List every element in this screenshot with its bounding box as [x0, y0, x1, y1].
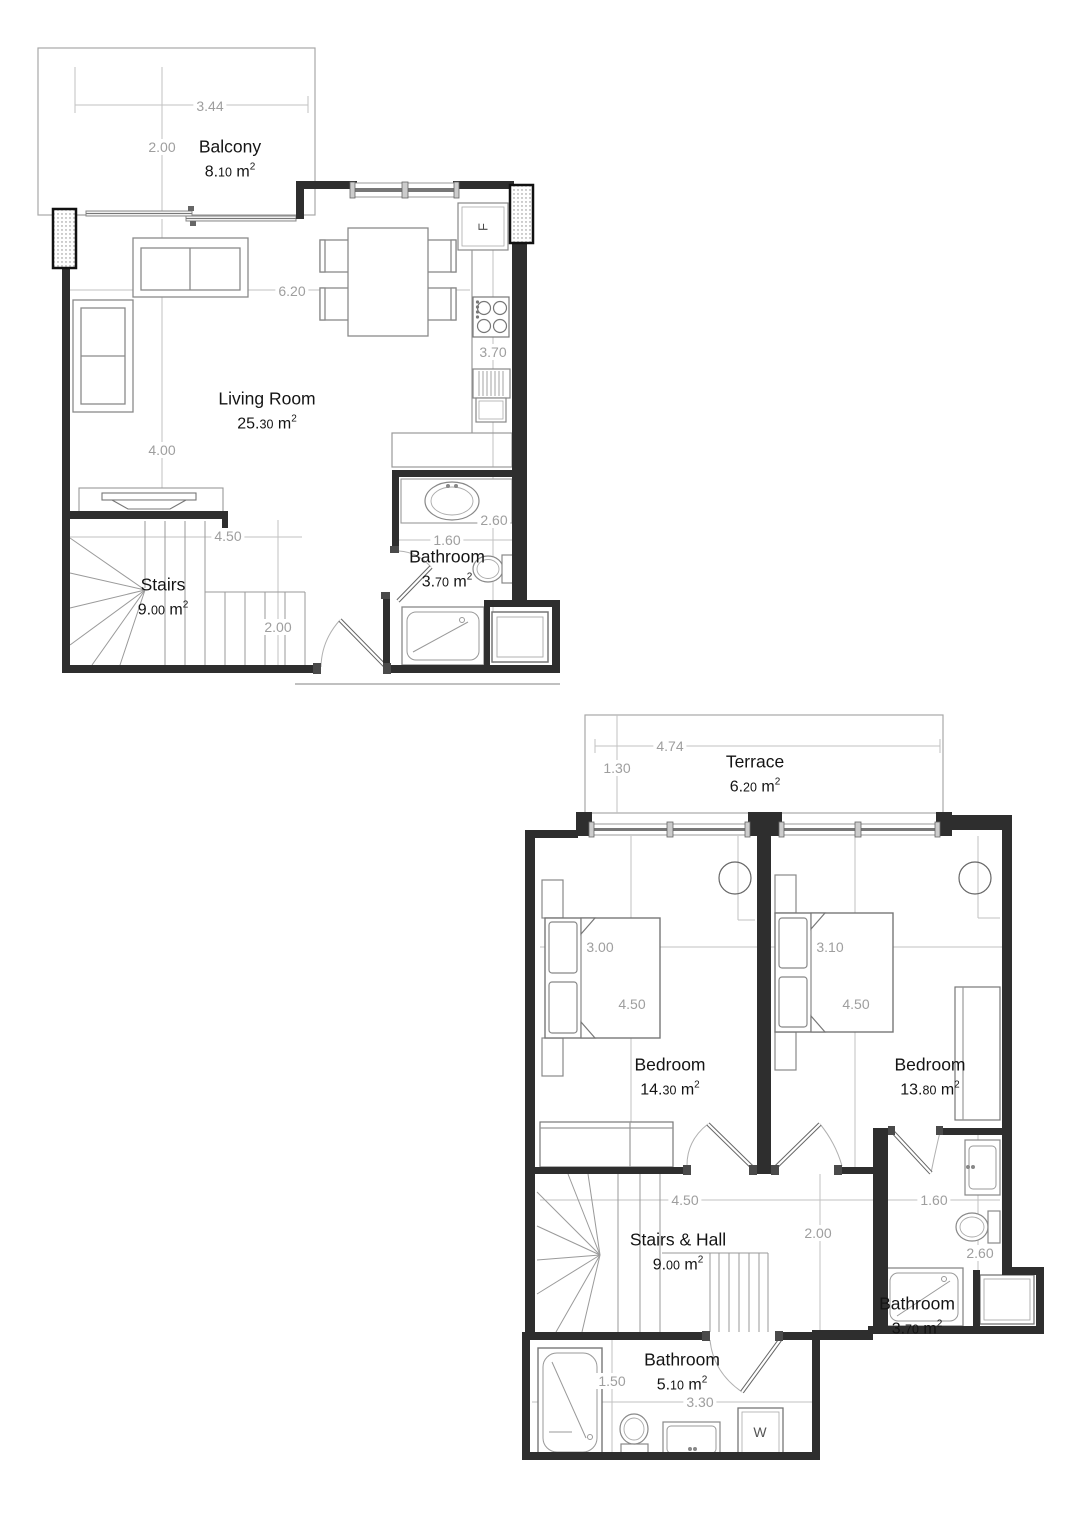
room-label-bathroom-f1: Bathroom 3.70 m2 — [409, 546, 485, 593]
room-label-stairs: Stairs 9.00 m2 — [138, 574, 189, 621]
dim-bathroom-small-width: 1.60 — [917, 1192, 950, 1208]
dim-bedroom2-depth: 4.50 — [839, 996, 872, 1012]
room-label-balcony: Balcony 8.10 m2 — [199, 136, 261, 183]
floor1-window — [350, 182, 459, 198]
dim-living-depth: 4.00 — [145, 442, 178, 458]
dim-living-width: 6.20 — [275, 283, 308, 299]
dim-stairs-depth: 2.00 — [261, 619, 294, 635]
room-label-bedroom-1: Bedroom 14.30 m2 — [634, 1054, 705, 1101]
room-label-stairs-hall: Stairs & Hall 9.00 m2 — [630, 1229, 726, 1276]
dim-balcony-depth: 2.00 — [145, 139, 178, 155]
room-label-terrace: Terrace 6.20 m2 — [726, 751, 784, 798]
room-label-living-room: Living Room 25.30 m2 — [218, 388, 315, 435]
d im-bedroom2-width: 3.10 — [813, 939, 846, 955]
dim-terrace-width: 4.74 — [653, 738, 686, 754]
floor1-closet-icon — [492, 612, 548, 662]
dim-balcony-width: 3.44 — [193, 98, 226, 114]
room-label-bathroom-small: Bathroom 3.70 m2 — [879, 1293, 955, 1340]
dim-bathroom-small-depth: 2.60 — [963, 1245, 996, 1261]
washer-label: W — [753, 1424, 766, 1440]
floor1-sofa-icons — [73, 238, 248, 412]
room-label-bathroom-large: Bathroom 5.10 m2 — [644, 1349, 720, 1396]
dim-terrace-depth: 1.30 — [600, 760, 633, 776]
dim-bathroom-f1-depth: 2.60 — [477, 512, 510, 528]
floorplan-document: Balcony 8.10 m2 Living Room 25.30 m2 Sta… — [0, 0, 1080, 1540]
room-label-bedroom-2: Bedroom 13.80 m2 — [894, 1054, 965, 1101]
dim-hall-width: 4.50 — [668, 1192, 701, 1208]
dim-kitchen-length: 3.70 — [476, 344, 509, 360]
floor2-bedroom1-furniture — [540, 862, 751, 1167]
floor2-closet-icon — [980, 1275, 1034, 1324]
floor2-bedroom2-furniture — [775, 862, 1000, 1120]
fridge-label: F — [476, 223, 491, 231]
dim-hall-depth: 2.00 — [801, 1225, 834, 1241]
floor1-balcony-outline — [38, 48, 315, 215]
dim-bathroom-large-depth: 1.50 — [595, 1373, 628, 1389]
dim-bedroom1-width: 3.00 — [583, 939, 616, 955]
floor1-dining-table-icon — [320, 228, 456, 336]
floor1-tv-cabinet-icon — [79, 488, 223, 512]
dim-stairs-width: 4.50 — [211, 528, 244, 544]
dim-bedroom1-depth: 4.50 — [615, 996, 648, 1012]
floor1-balcony-slider — [76, 206, 296, 226]
